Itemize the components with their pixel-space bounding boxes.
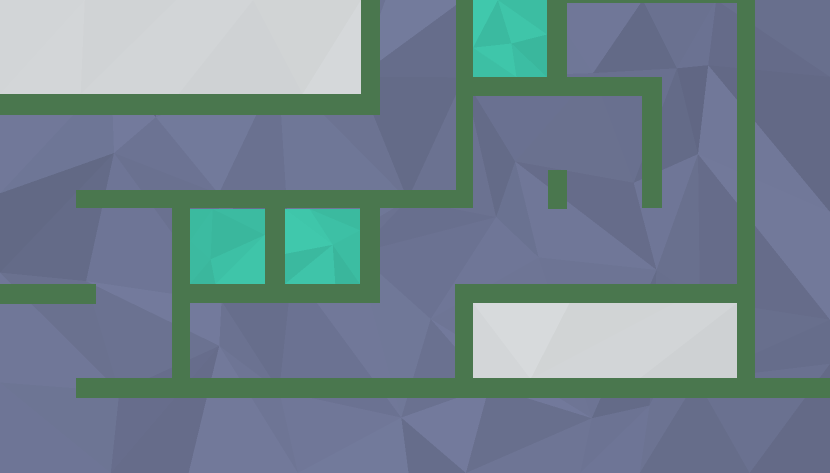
walls-layer: [0, 0, 830, 473]
maze-wall: [455, 284, 473, 379]
maze-wall: [265, 208, 285, 284]
maze-wall: [76, 190, 473, 208]
maze-wall: [172, 208, 190, 398]
maze-wall: [548, 170, 567, 209]
maze-wall: [361, 0, 380, 115]
maze-wall: [737, 0, 755, 398]
maze-wall: [190, 284, 380, 303]
maze-wall: [456, 0, 473, 208]
maze-wall: [0, 94, 380, 115]
maze-wall: [76, 378, 830, 398]
maze-wall: [0, 284, 96, 304]
maze-wall: [565, 0, 737, 3]
game-viewport: [0, 0, 830, 473]
maze-wall: [642, 77, 662, 208]
maze-wall: [457, 77, 662, 96]
maze-wall: [455, 284, 737, 303]
